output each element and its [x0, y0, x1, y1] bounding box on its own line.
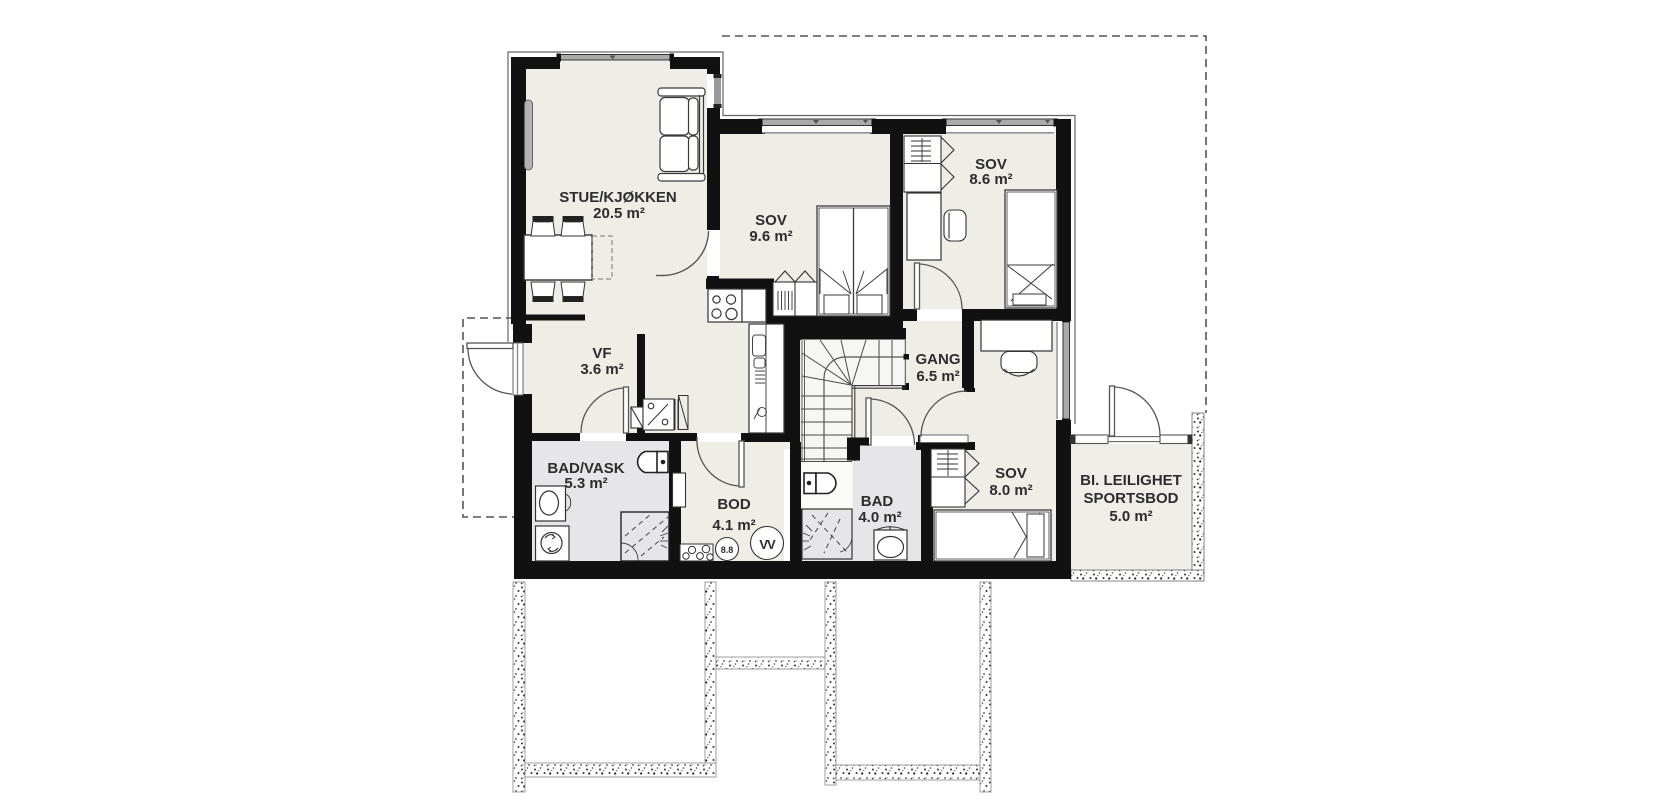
- svg-text:5.3 m²: 5.3 m²: [564, 475, 607, 492]
- svg-text:BAD: BAD: [861, 493, 894, 510]
- svg-text:SOV: SOV: [995, 465, 1027, 482]
- svg-text:BI. LEILIGHET: BI. LEILIGHET: [1080, 472, 1182, 489]
- svg-text:9.6 m²: 9.6 m²: [749, 228, 792, 245]
- svg-text:SOV: SOV: [755, 212, 787, 229]
- svg-text:3.6 m²: 3.6 m²: [580, 361, 623, 378]
- svg-text:8.8: 8.8: [721, 545, 734, 555]
- svg-text:VV: VV: [759, 537, 776, 552]
- svg-text:5.0 m²: 5.0 m²: [1109, 508, 1152, 525]
- svg-text:GANG: GANG: [916, 351, 961, 368]
- svg-text:4.0 m²: 4.0 m²: [858, 509, 901, 526]
- svg-text:4.1 m²: 4.1 m²: [712, 517, 755, 534]
- svg-text:20.5 m²: 20.5 m²: [593, 205, 645, 222]
- svg-text:SPORTSBOD: SPORTSBOD: [1083, 490, 1178, 507]
- svg-text:8.0 m²: 8.0 m²: [989, 482, 1032, 499]
- svg-text:6.5 m²: 6.5 m²: [916, 368, 959, 385]
- svg-text:VF: VF: [592, 345, 611, 362]
- svg-text:8.6 m²: 8.6 m²: [969, 171, 1012, 188]
- svg-text:BOD: BOD: [717, 496, 751, 513]
- svg-text:STUE/KJØKKEN: STUE/KJØKKEN: [559, 189, 677, 206]
